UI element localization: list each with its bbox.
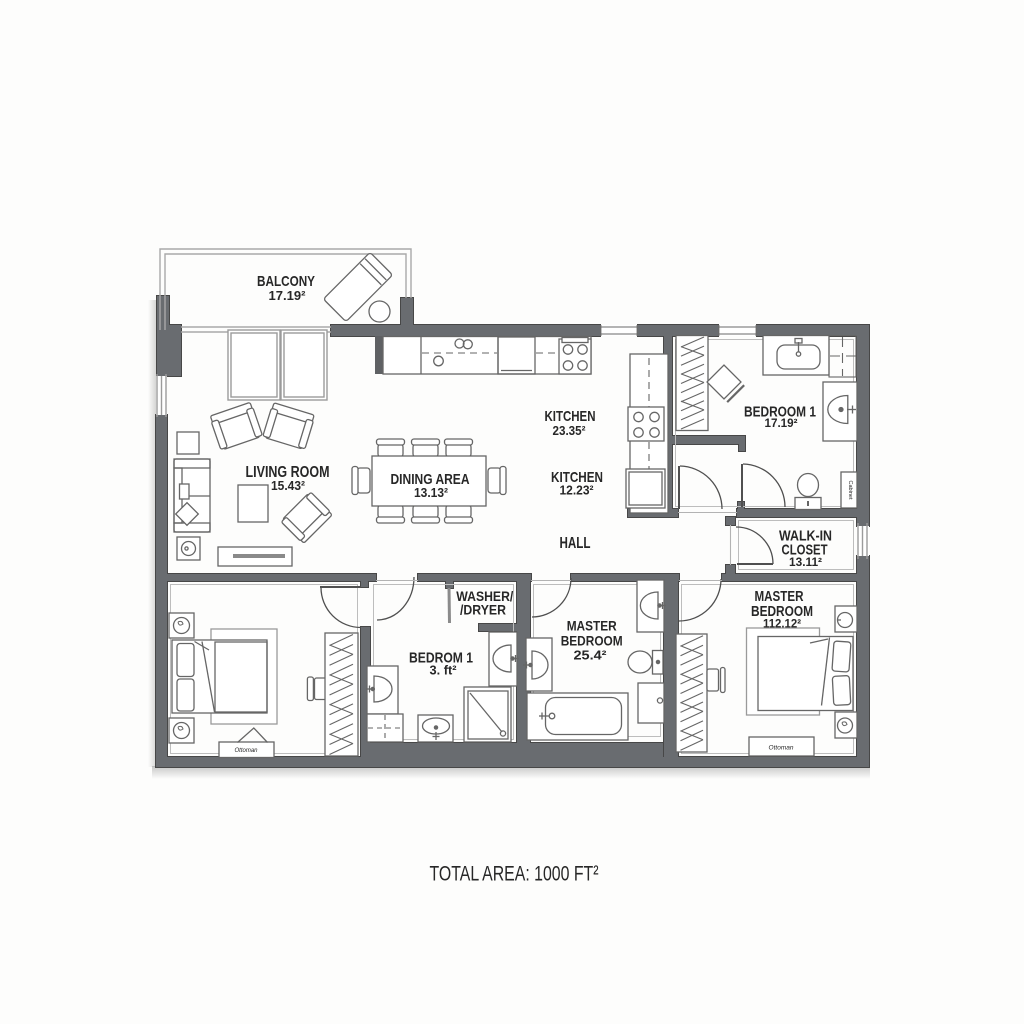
svg-text:13.13²: 13.13² bbox=[414, 486, 448, 500]
svg-text:BEDROOM: BEDROOM bbox=[561, 633, 623, 649]
svg-text:BALCONY: BALCONY bbox=[257, 273, 315, 290]
svg-text:112.12²: 112.12² bbox=[763, 617, 801, 631]
svg-text:HALL: HALL bbox=[560, 535, 591, 552]
svg-text:25.4²: 25.4² bbox=[574, 649, 607, 663]
svg-text:KITCHEN: KITCHEN bbox=[545, 408, 596, 425]
svg-text:Ottoman: Ottoman bbox=[234, 748, 258, 754]
svg-text:TOTAL AREA: 1000 FT²: TOTAL AREA: 1000 FT² bbox=[430, 862, 599, 886]
svg-text:3. ft²: 3. ft² bbox=[430, 664, 457, 678]
svg-text:17.19²: 17.19² bbox=[269, 289, 306, 303]
svg-text:Cabinet: Cabinet bbox=[847, 481, 853, 500]
svg-text:17.19²: 17.19² bbox=[765, 416, 798, 430]
svg-text:23.35²: 23.35² bbox=[553, 424, 586, 438]
svg-text:MASTER: MASTER bbox=[567, 618, 617, 634]
svg-text:/DRYER: /DRYER bbox=[460, 602, 506, 618]
svg-text:MASTER: MASTER bbox=[755, 589, 804, 605]
svg-text:13.11²: 13.11² bbox=[789, 555, 822, 569]
svg-text:15.43²: 15.43² bbox=[271, 479, 305, 493]
svg-text:Ottoman: Ottoman bbox=[769, 745, 794, 752]
svg-text:12.23²: 12.23² bbox=[560, 484, 594, 498]
